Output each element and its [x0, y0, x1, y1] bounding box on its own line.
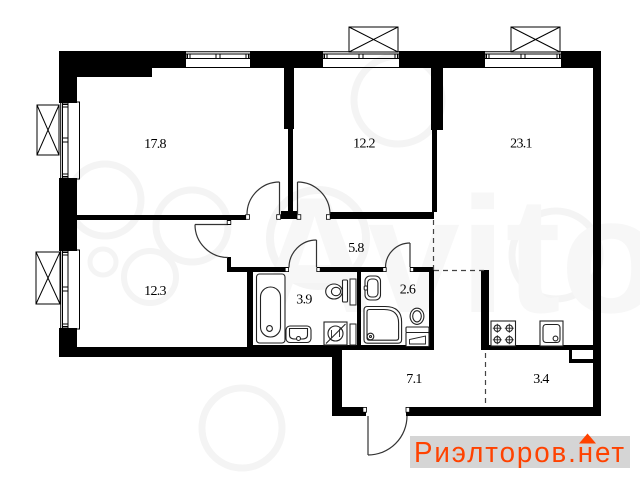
svg-text:3.4: 3.4 — [533, 372, 549, 387]
svg-text:12.2: 12.2 — [353, 137, 375, 152]
svg-text:17.8: 17.8 — [144, 137, 166, 152]
svg-text:3.9: 3.9 — [296, 293, 312, 308]
svg-text:23.1: 23.1 — [510, 137, 532, 152]
svg-text:2.6: 2.6 — [400, 283, 416, 298]
svg-text:5.8: 5.8 — [348, 241, 364, 256]
svg-text:Avito: Avito — [255, 163, 640, 347]
svg-text:7.1: 7.1 — [406, 372, 422, 387]
svg-text:12.3: 12.3 — [144, 284, 166, 299]
